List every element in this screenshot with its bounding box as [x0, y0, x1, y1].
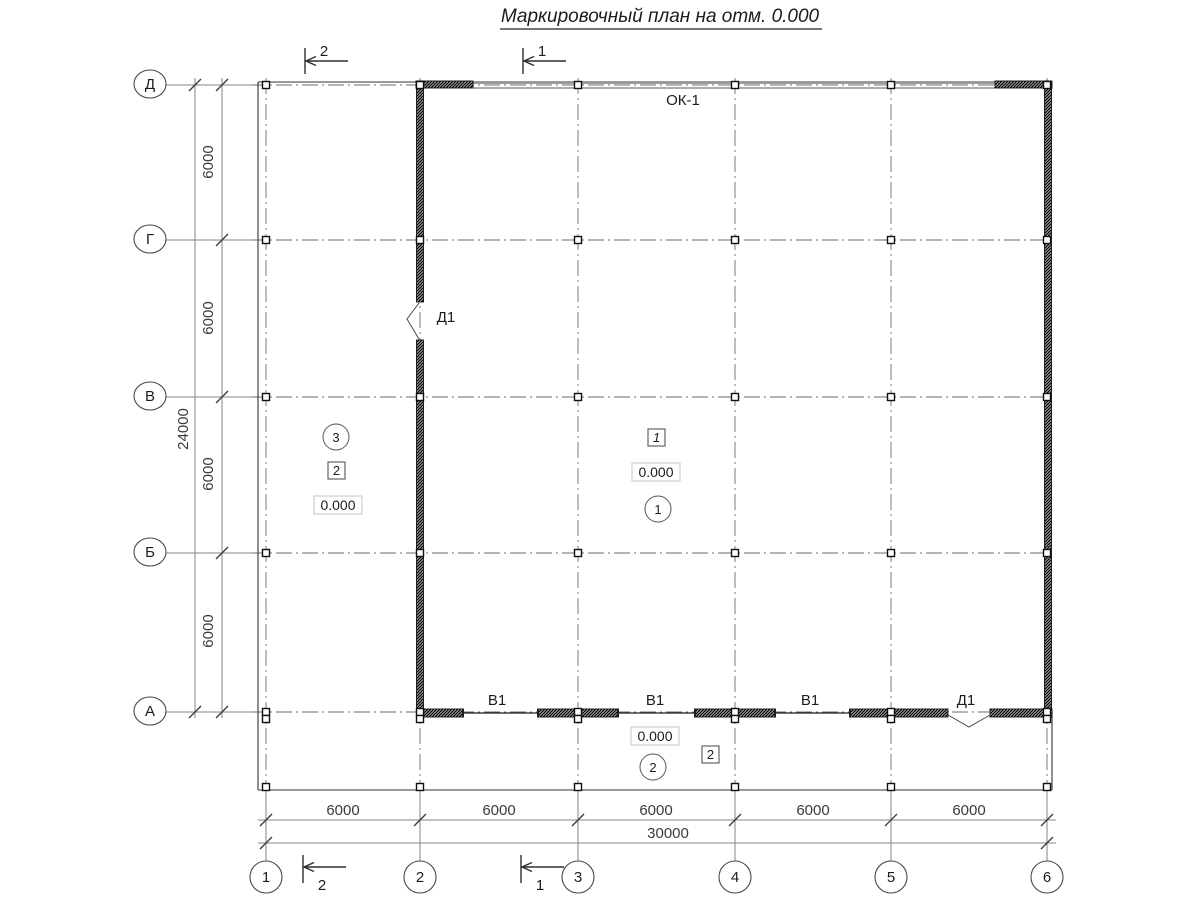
column-square: [1044, 82, 1051, 89]
column-square: [575, 709, 582, 716]
column-square: [417, 784, 424, 791]
column-square: [575, 784, 582, 791]
column-square: [263, 237, 270, 244]
column-square: [732, 237, 739, 244]
dimension-ticks: [189, 79, 1053, 849]
elevation-mark-hall: 0.000: [632, 463, 680, 481]
wall-bottom-seg4: [850, 709, 948, 717]
column-square: [263, 394, 270, 401]
position-box-text: 2: [707, 747, 714, 762]
column-square: [1044, 709, 1051, 716]
column-square: [888, 394, 895, 401]
dim-left-seg1: 6000: [200, 145, 217, 178]
dim-left-seg3: 6000: [200, 457, 217, 490]
column-square: [263, 784, 270, 791]
column-square: [263, 709, 270, 716]
axis-label: 2: [416, 869, 424, 886]
door-swing-left: [407, 303, 419, 339]
drawing-title: Маркировочный план на отм. 0.000: [500, 6, 822, 29]
column-square: [417, 237, 424, 244]
dim-left-total: 24000: [175, 408, 192, 450]
window-mark-label: ОК-1: [666, 92, 700, 109]
axis-bubble-col-5: 5: [875, 861, 907, 893]
elevation-mark-strip: 0.000: [631, 727, 679, 745]
marking-plan-drawing: Маркировочный план на отм. 0.000: [0, 0, 1200, 900]
column-square: [888, 237, 895, 244]
section-mark-bottom-2: 2: [303, 855, 346, 894]
axis-label: 4: [731, 869, 739, 886]
section-number: 2: [318, 877, 326, 894]
bottom-dimensions: 6000 6000 6000 6000 6000 30000: [258, 802, 1056, 843]
section-number: 1: [538, 43, 546, 60]
axis-bubble-col-6: 6: [1031, 861, 1063, 893]
column-square: [575, 394, 582, 401]
elevation-text: 0.000: [320, 497, 355, 513]
section-mark-top-1: 1: [523, 43, 566, 74]
dim-bottom-seg2: 6000: [482, 802, 515, 819]
wall-bottom-seg1: [420, 709, 463, 717]
column-square: [417, 394, 424, 401]
gate-mark-1-label: В1: [488, 692, 506, 709]
column-square: [1044, 394, 1051, 401]
axis-bubble-row-g: Г: [134, 225, 166, 253]
axis-bubble-col-2: 2: [404, 861, 436, 893]
axis-label: 6: [1043, 869, 1051, 886]
column-square: [888, 82, 895, 89]
column-square: [888, 716, 895, 723]
dim-left-seg2: 6000: [200, 301, 217, 334]
axis-bubble-row-v: В: [134, 382, 166, 410]
column-square: [575, 237, 582, 244]
axis-label: 5: [887, 869, 895, 886]
elevation-mark-left: 0.000: [314, 496, 362, 514]
dim-bottom-seg1: 6000: [326, 802, 359, 819]
left-dimensions: 24000 6000 6000 6000 6000: [175, 78, 222, 718]
room-number-strip: 2: [640, 754, 666, 780]
dim-bottom-seg3: 6000: [639, 802, 672, 819]
column-square: [263, 82, 270, 89]
axis-label: 1: [262, 869, 270, 886]
door-mark-left-label: Д1: [437, 309, 456, 326]
column-square: [732, 394, 739, 401]
room-number-text: 1: [654, 502, 661, 517]
position-box-hall: 1: [648, 429, 665, 446]
room-number-hall: 1: [645, 496, 671, 522]
column-square: [888, 550, 895, 557]
wall-axis2-upper: [417, 81, 424, 302]
column-square: [1044, 237, 1051, 244]
column-square: [888, 709, 895, 716]
gate-mark-2-label: В1: [646, 692, 664, 709]
column-square: [263, 716, 270, 723]
elevation-text: 0.000: [637, 728, 672, 744]
position-box-text: 2: [333, 463, 340, 478]
position-box-strip: 2: [702, 746, 719, 763]
column-square: [575, 550, 582, 557]
column-square: [417, 550, 424, 557]
section-number: 2: [320, 43, 328, 60]
position-box-text: 1: [653, 430, 660, 445]
axis-bubble-row-b: Б: [134, 538, 166, 566]
column-square: [1044, 550, 1051, 557]
axis-label: В: [145, 388, 155, 405]
column-square: [732, 550, 739, 557]
room-marks: 3 2 0.000 1 0.000 1 0.000 2: [314, 424, 719, 780]
column-square: [575, 716, 582, 723]
axis-label: А: [145, 703, 155, 720]
axis-bubble-col-1: 1: [250, 861, 282, 893]
dim-bottom-seg5: 6000: [952, 802, 985, 819]
room-number-text: 3: [332, 430, 339, 445]
axis-bubbles-bottom: 1 2 3 4 5 6: [250, 861, 1063, 893]
axis-grid-lines: [166, 78, 1056, 861]
column-square: [888, 784, 895, 791]
column-square: [417, 709, 424, 716]
section-mark-bottom-1: 1: [521, 855, 564, 894]
wall-bottom-seg5: [990, 709, 1052, 717]
section-mark-top-2: 2: [305, 43, 348, 74]
dim-bottom-total: 30000: [647, 825, 689, 842]
column-square: [732, 716, 739, 723]
column-square: [732, 82, 739, 89]
dim-left-seg4: 6000: [200, 614, 217, 647]
column-square: [732, 784, 739, 791]
wall-top-left-segment: [416, 81, 473, 88]
section-number: 1: [536, 877, 544, 894]
elevation-text: 0.000: [638, 464, 673, 480]
axis-bubble-row-d: Д: [134, 70, 166, 98]
axis-label: Г: [146, 231, 154, 248]
axis-bubble-row-a: А: [134, 697, 166, 725]
door-swing-bottom: [948, 715, 990, 727]
column-square: [417, 82, 424, 89]
column-square: [575, 82, 582, 89]
gate-openings: [463, 709, 850, 718]
column-square: [417, 716, 424, 723]
room-number-text: 2: [649, 760, 656, 775]
column-square: [263, 550, 270, 557]
column-square: [1044, 716, 1051, 723]
axis-label: Д: [145, 76, 155, 93]
axis-bubbles-left: Д Г В Б А: [134, 70, 166, 725]
column-square: [1044, 784, 1051, 791]
page-title: Маркировочный план на отм. 0.000: [501, 6, 820, 27]
axis-bubble-col-3: 3: [562, 861, 594, 893]
axis-bubble-col-4: 4: [719, 861, 751, 893]
gate-mark-3-label: В1: [801, 692, 819, 709]
door-mark-bottom-label: Д1: [957, 692, 976, 709]
door-swings: [407, 303, 990, 727]
column-square: [732, 709, 739, 716]
position-box-left: 2: [328, 462, 345, 479]
room-number-left: 3: [323, 424, 349, 450]
axis-label: Б: [145, 544, 155, 561]
axis-label: 3: [574, 869, 582, 886]
dim-bottom-seg4: 6000: [796, 802, 829, 819]
